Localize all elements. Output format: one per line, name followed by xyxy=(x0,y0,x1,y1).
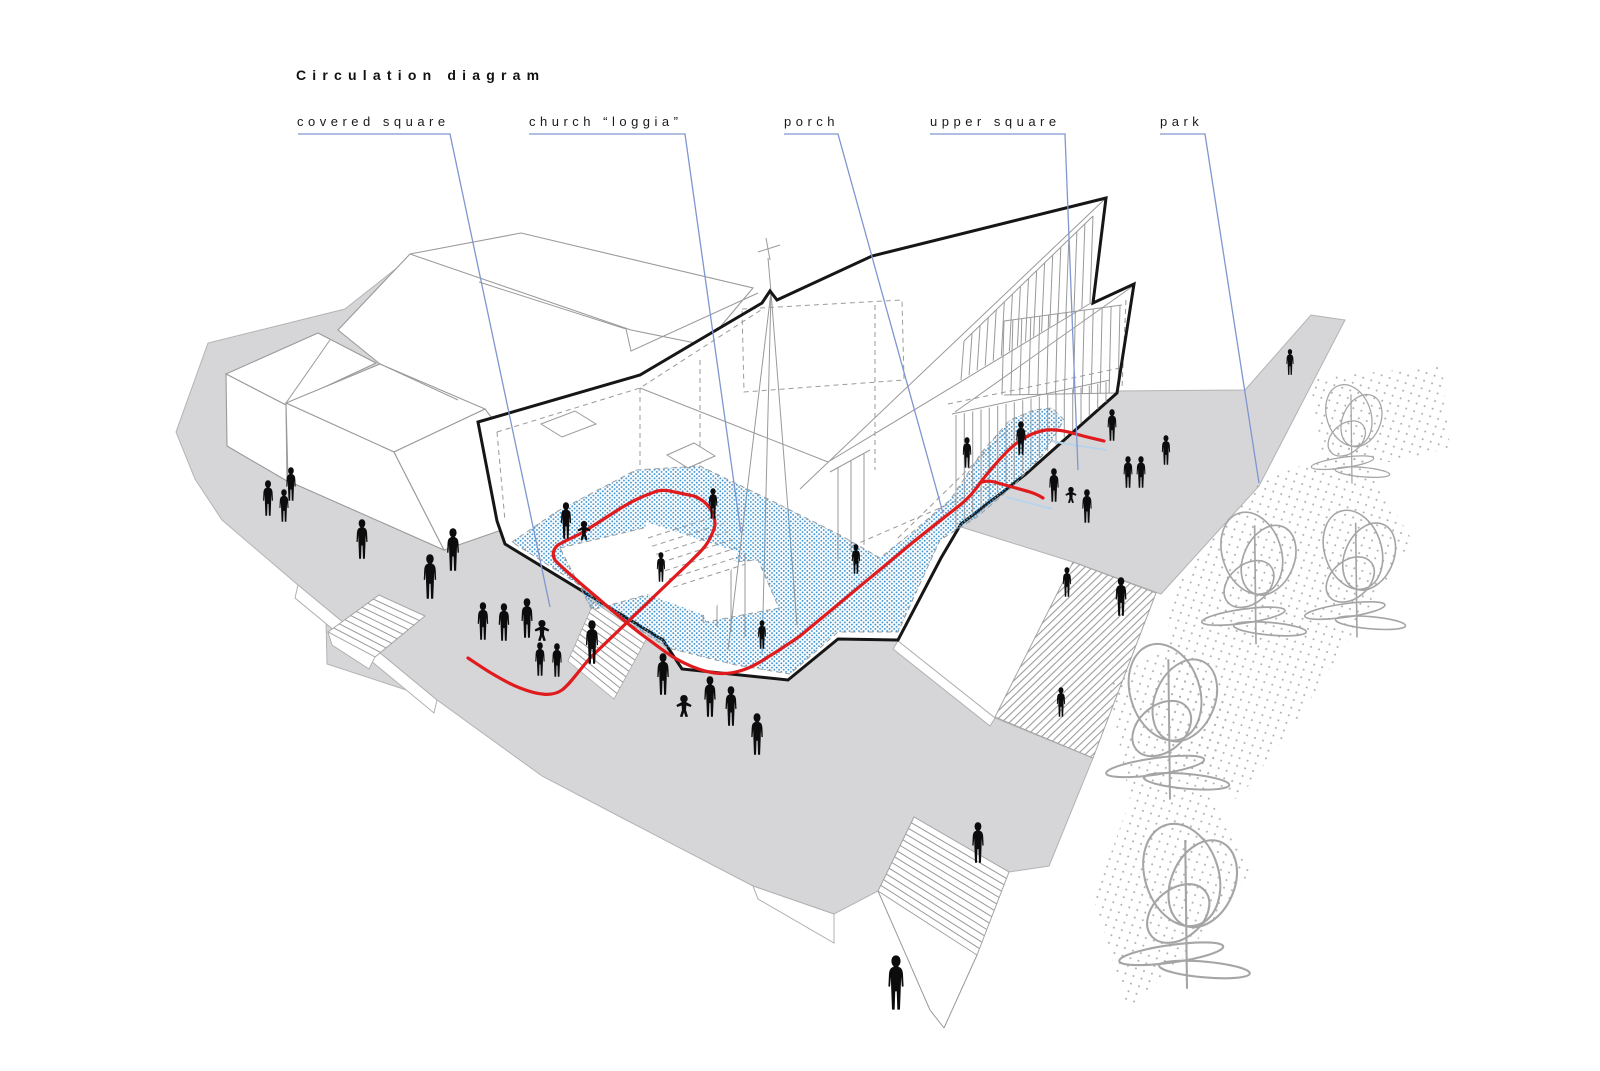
svg-text:porch: porch xyxy=(784,114,839,129)
svg-text:covered square: covered square xyxy=(297,114,450,129)
svg-text:Circulation diagram: Circulation diagram xyxy=(296,67,545,83)
svg-text:church “loggia”: church “loggia” xyxy=(529,114,683,129)
svg-text:park: park xyxy=(1160,114,1203,129)
svg-text:upper square: upper square xyxy=(930,114,1061,129)
